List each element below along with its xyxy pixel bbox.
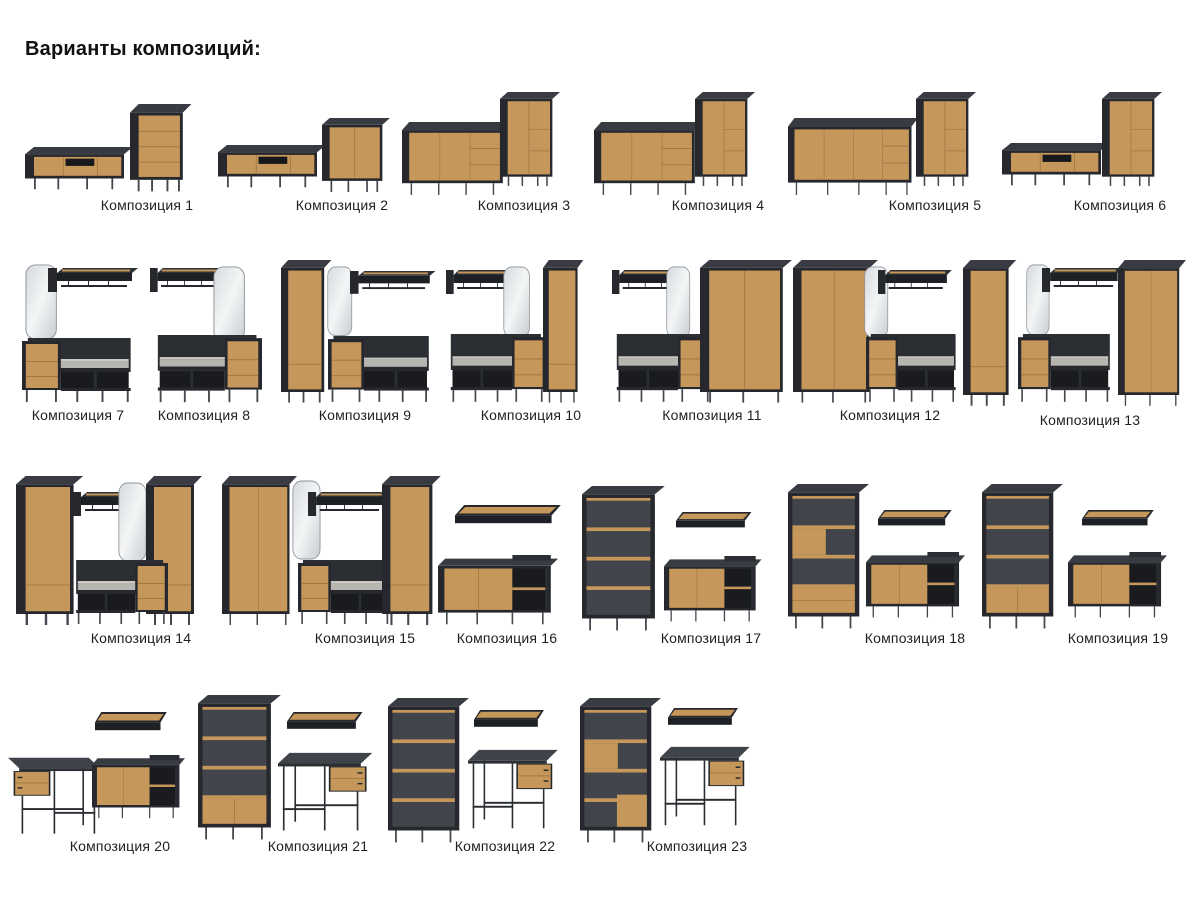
wall-shelf — [668, 708, 738, 725]
composition-4-caption: Композиция 4 — [638, 197, 798, 213]
composition-17-caption: Композиция 17 — [631, 630, 791, 646]
wardrobe — [222, 476, 297, 625]
wall-shelf — [455, 505, 561, 523]
composition-1-caption: Композиция 1 — [67, 197, 227, 213]
chest-of-drawers — [130, 104, 191, 191]
tall-cabinet — [916, 92, 976, 186]
wall-shelf — [287, 712, 362, 729]
tall-wardrobe — [543, 260, 583, 403]
sideboard — [594, 122, 702, 195]
composition-12-caption: Композиция 12 — [810, 407, 970, 423]
sideboard — [1068, 552, 1167, 617]
composition-10-caption: Композиция 10 — [451, 407, 611, 423]
composition-13-image — [963, 260, 1186, 406]
composition-16-caption: Композиция 16 — [427, 630, 587, 646]
composition-11-caption: Композиция 11 — [632, 407, 792, 423]
hallway-bench — [328, 336, 429, 402]
composition-14-image — [16, 476, 202, 625]
mirror — [667, 267, 690, 337]
composition-4-image — [594, 92, 755, 195]
tv-stand — [1002, 143, 1110, 185]
tall-wardrobe — [382, 476, 441, 625]
desk — [278, 753, 372, 831]
bookcase — [198, 695, 281, 839]
tall-cabinet — [695, 92, 755, 186]
composition-6-image — [1002, 92, 1162, 186]
composition-19-image — [982, 484, 1167, 628]
composition-5-caption: Композиция 5 — [855, 197, 1015, 213]
composition-3-image — [402, 92, 560, 195]
sideboard — [866, 552, 965, 617]
composition-20-caption: Композиция 20 — [40, 838, 200, 854]
hallway-bench — [617, 334, 712, 402]
composition-9-caption: Композиция 9 — [285, 407, 445, 423]
tall-cabinet — [500, 92, 560, 186]
tall-wardrobe — [281, 260, 331, 403]
tall-cabinet — [1102, 92, 1162, 186]
hallway-bench — [1018, 334, 1110, 402]
hallway-bench — [22, 338, 131, 402]
cabinet — [322, 118, 390, 192]
wardrobe — [700, 260, 792, 403]
hallway-bench — [451, 334, 546, 402]
composition-5-image — [788, 92, 976, 195]
composition-2-caption: Композиция 2 — [262, 197, 422, 213]
composition-3-caption: Композиция 3 — [444, 197, 604, 213]
composition-6-caption: Композиция 6 — [1040, 197, 1200, 213]
bookcase — [580, 698, 661, 842]
mirror — [214, 267, 244, 341]
composition-23-image — [580, 698, 750, 842]
bookcase — [788, 484, 869, 628]
composition-11-image — [612, 260, 792, 403]
long-sideboard — [788, 118, 918, 195]
wardrobe — [1118, 260, 1186, 406]
composition-10-image — [446, 260, 583, 403]
hallway-bench — [158, 335, 262, 402]
coat-rack — [1042, 268, 1123, 292]
furniture-catalog: Варианты композиций: — [0, 0, 1200, 900]
wall-shelf — [1082, 510, 1154, 525]
composition-17-image — [582, 486, 762, 630]
composition-12-image — [793, 260, 956, 403]
composition-22-image — [388, 698, 558, 842]
composition-13-caption: Композиция 13 — [1010, 412, 1170, 428]
desk — [660, 747, 750, 825]
composition-14-caption: Композиция 14 — [61, 630, 221, 646]
composition-15-image — [222, 476, 441, 625]
bookcase — [388, 698, 469, 842]
sideboard — [664, 556, 762, 621]
tall-wardrobe — [963, 260, 1016, 406]
composition-23-caption: Композиция 23 — [617, 838, 777, 854]
composition-20-image — [8, 712, 185, 834]
composition-15-caption: Композиция 15 — [285, 630, 445, 646]
composition-8-caption: Композиция 8 — [124, 407, 284, 423]
tv-stand — [218, 145, 326, 187]
wall-shelf — [676, 512, 751, 527]
composition-21-image — [198, 695, 372, 839]
composition-19-caption: Композиция 19 — [1038, 630, 1198, 646]
compositions-artwork — [0, 0, 1200, 900]
composition-8-image — [150, 267, 262, 402]
desk — [468, 750, 558, 828]
bookcase — [982, 484, 1063, 628]
hallway-bench — [866, 334, 956, 402]
desk — [8, 758, 100, 834]
bookcase — [582, 486, 665, 630]
composition-1-image — [25, 104, 191, 191]
composition-9-image — [281, 260, 436, 403]
composition-22-caption: Композиция 22 — [425, 838, 585, 854]
wall-shelf — [878, 510, 952, 525]
hallway-bench — [298, 560, 390, 624]
coat-rack — [350, 271, 436, 294]
composition-21-caption: Композиция 21 — [238, 838, 398, 854]
tv-stand — [25, 147, 133, 189]
coat-rack — [48, 268, 138, 292]
mirror — [328, 267, 352, 336]
sideboard — [438, 555, 558, 624]
composition-2-image — [218, 118, 390, 192]
mirror — [504, 267, 530, 337]
wall-shelf — [474, 710, 544, 727]
composition-18-image — [788, 484, 965, 628]
coat-rack — [878, 270, 952, 294]
composition-18-caption: Композиция 18 — [835, 630, 995, 646]
sideboard — [92, 755, 185, 818]
sideboard — [402, 122, 510, 195]
composition-16-image — [438, 505, 561, 624]
wall-shelf — [95, 712, 167, 730]
mirror — [119, 483, 146, 561]
composition-7-image — [22, 265, 138, 402]
